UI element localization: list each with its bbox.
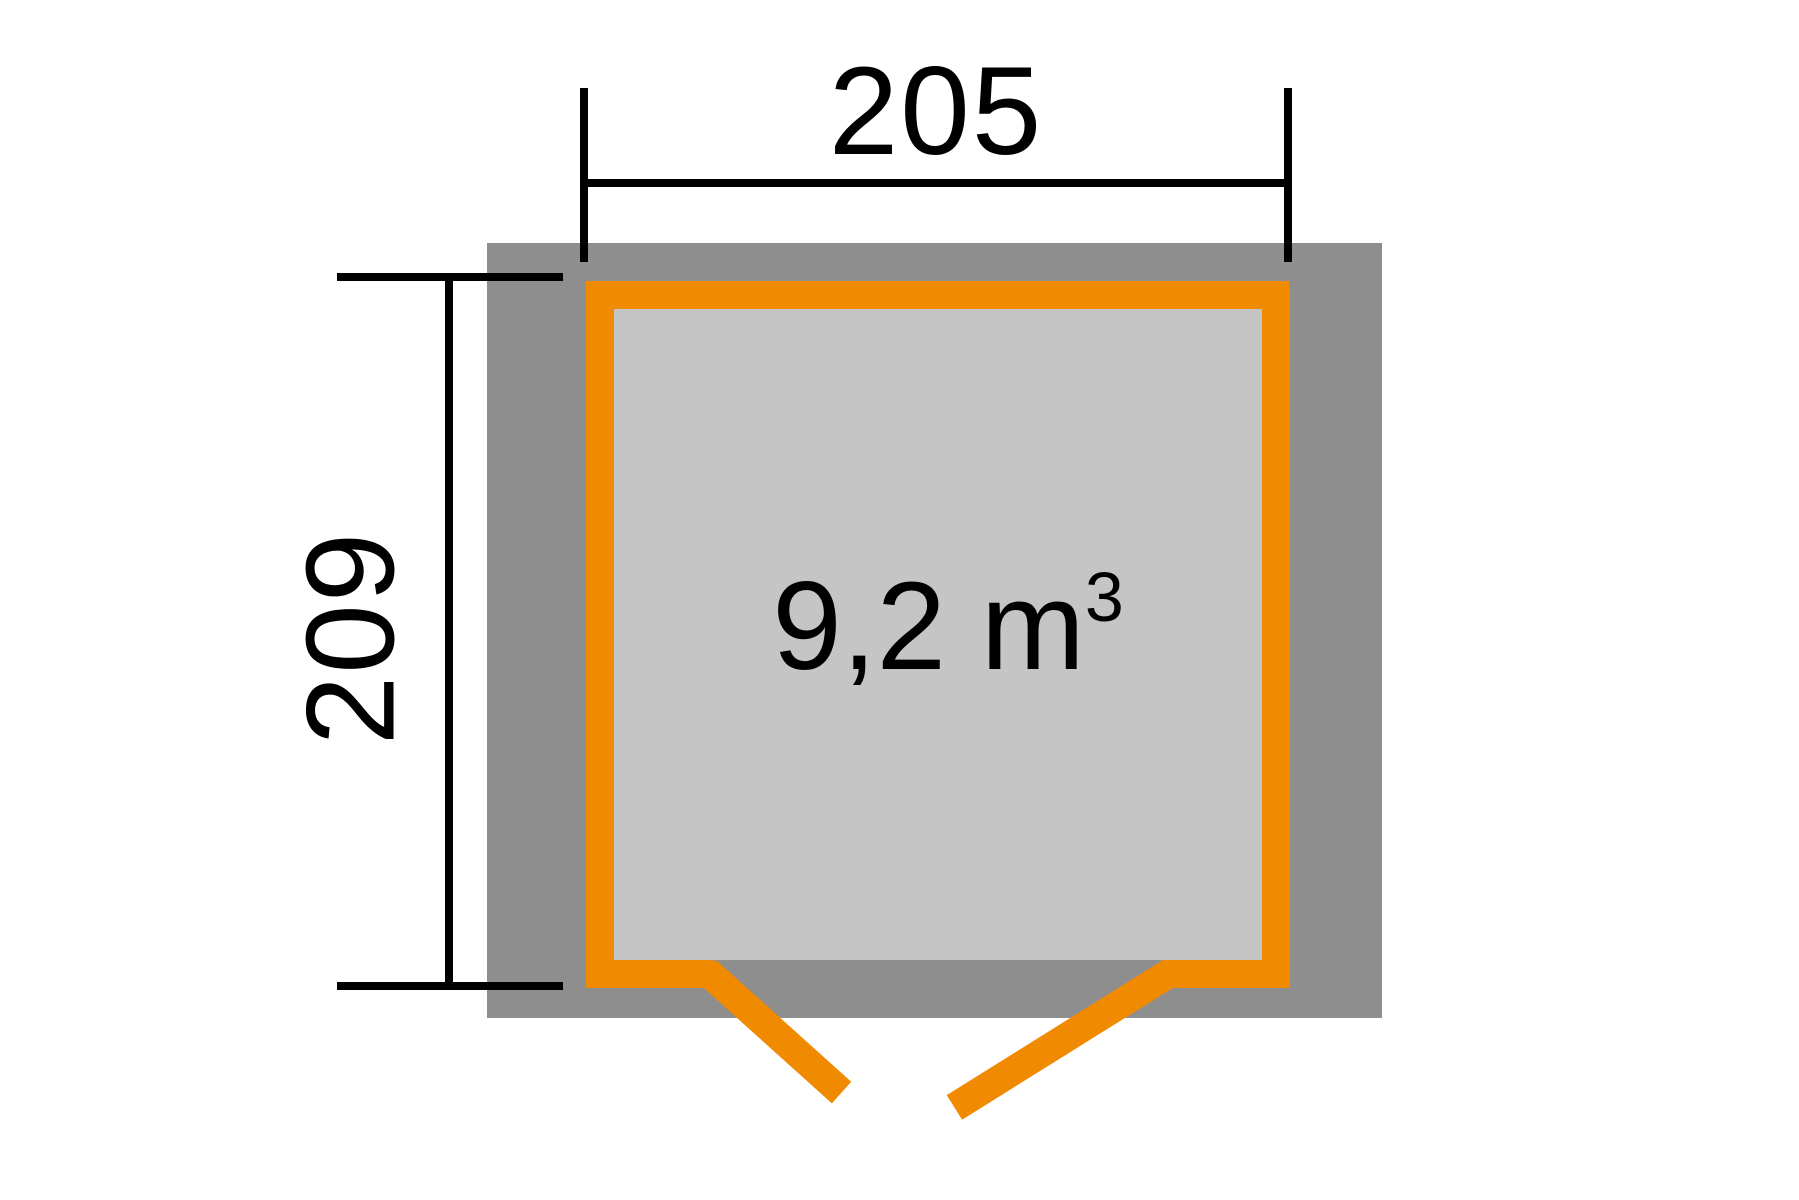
volume-label: 9,2 m3 [772,564,1124,689]
volume-superscript: 3 [1085,562,1124,632]
depth-dimension-label: 209 [289,531,414,746]
depth-dimension-line [445,277,453,986]
depth-dimension-tick-bottom [337,982,563,990]
depth-dimension-tick-top [337,273,563,281]
volume-value: 9,2 m [772,557,1085,696]
floor-plan-canvas: 205 209 9,2 m3 [0,0,1799,1200]
width-dimension-label: 205 [584,49,1288,174]
